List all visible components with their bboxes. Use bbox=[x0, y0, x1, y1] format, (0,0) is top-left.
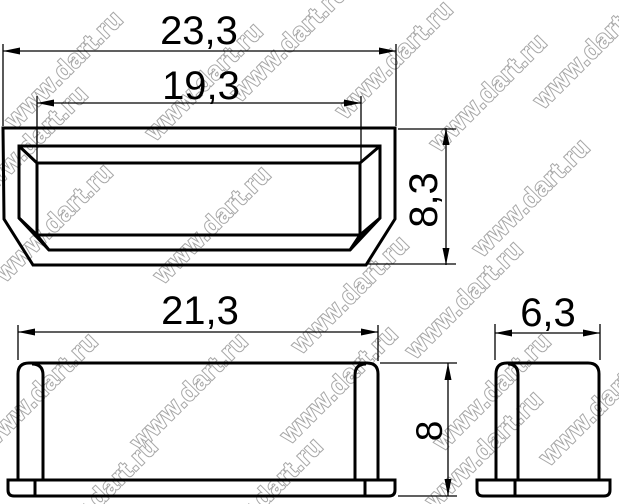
arrow-left-icon bbox=[495, 330, 512, 337]
end-flange-outline bbox=[477, 480, 610, 496]
dim-label-end-width: 6,3 bbox=[520, 291, 576, 335]
dim-label-outer-width: 23,3 bbox=[160, 9, 238, 53]
watermark-text: www.dart.ru bbox=[34, 432, 164, 504]
arrow-up-icon bbox=[445, 363, 452, 380]
arrow-down-icon bbox=[443, 248, 450, 265]
watermark-text: www.dart.ru bbox=[399, 235, 529, 365]
watermark-text: www.dart.ru bbox=[329, 0, 459, 125]
dim-label-side-width: 21,3 bbox=[161, 289, 239, 333]
dim-label-front-height: 8,3 bbox=[402, 172, 446, 228]
watermark-text: www.dart.ru bbox=[147, 160, 277, 290]
watermark-text: www.dart.ru bbox=[199, 432, 329, 504]
technical-drawing: www.dart.ru www.dart.ru www.dart.ru www.… bbox=[0, 0, 619, 504]
watermark-text: www.dart.ru bbox=[466, 133, 596, 263]
dim-label-inner-width: 19,3 bbox=[162, 64, 240, 108]
side-view: 21,3 8 bbox=[8, 289, 457, 496]
arrow-left-icon bbox=[18, 329, 35, 336]
arrow-left-icon bbox=[3, 48, 20, 55]
arrow-right-icon bbox=[583, 330, 600, 337]
watermark-layer: www.dart.ru www.dart.ru www.dart.ru www.… bbox=[0, 0, 619, 504]
technical-drawing-canvas: www.dart.ru www.dart.ru www.dart.ru www.… bbox=[0, 0, 619, 504]
dim-label-side-height: 8 bbox=[409, 421, 450, 442]
watermark-text: www.dart.ru bbox=[0, 327, 104, 457]
side-flange-outline bbox=[8, 480, 395, 496]
